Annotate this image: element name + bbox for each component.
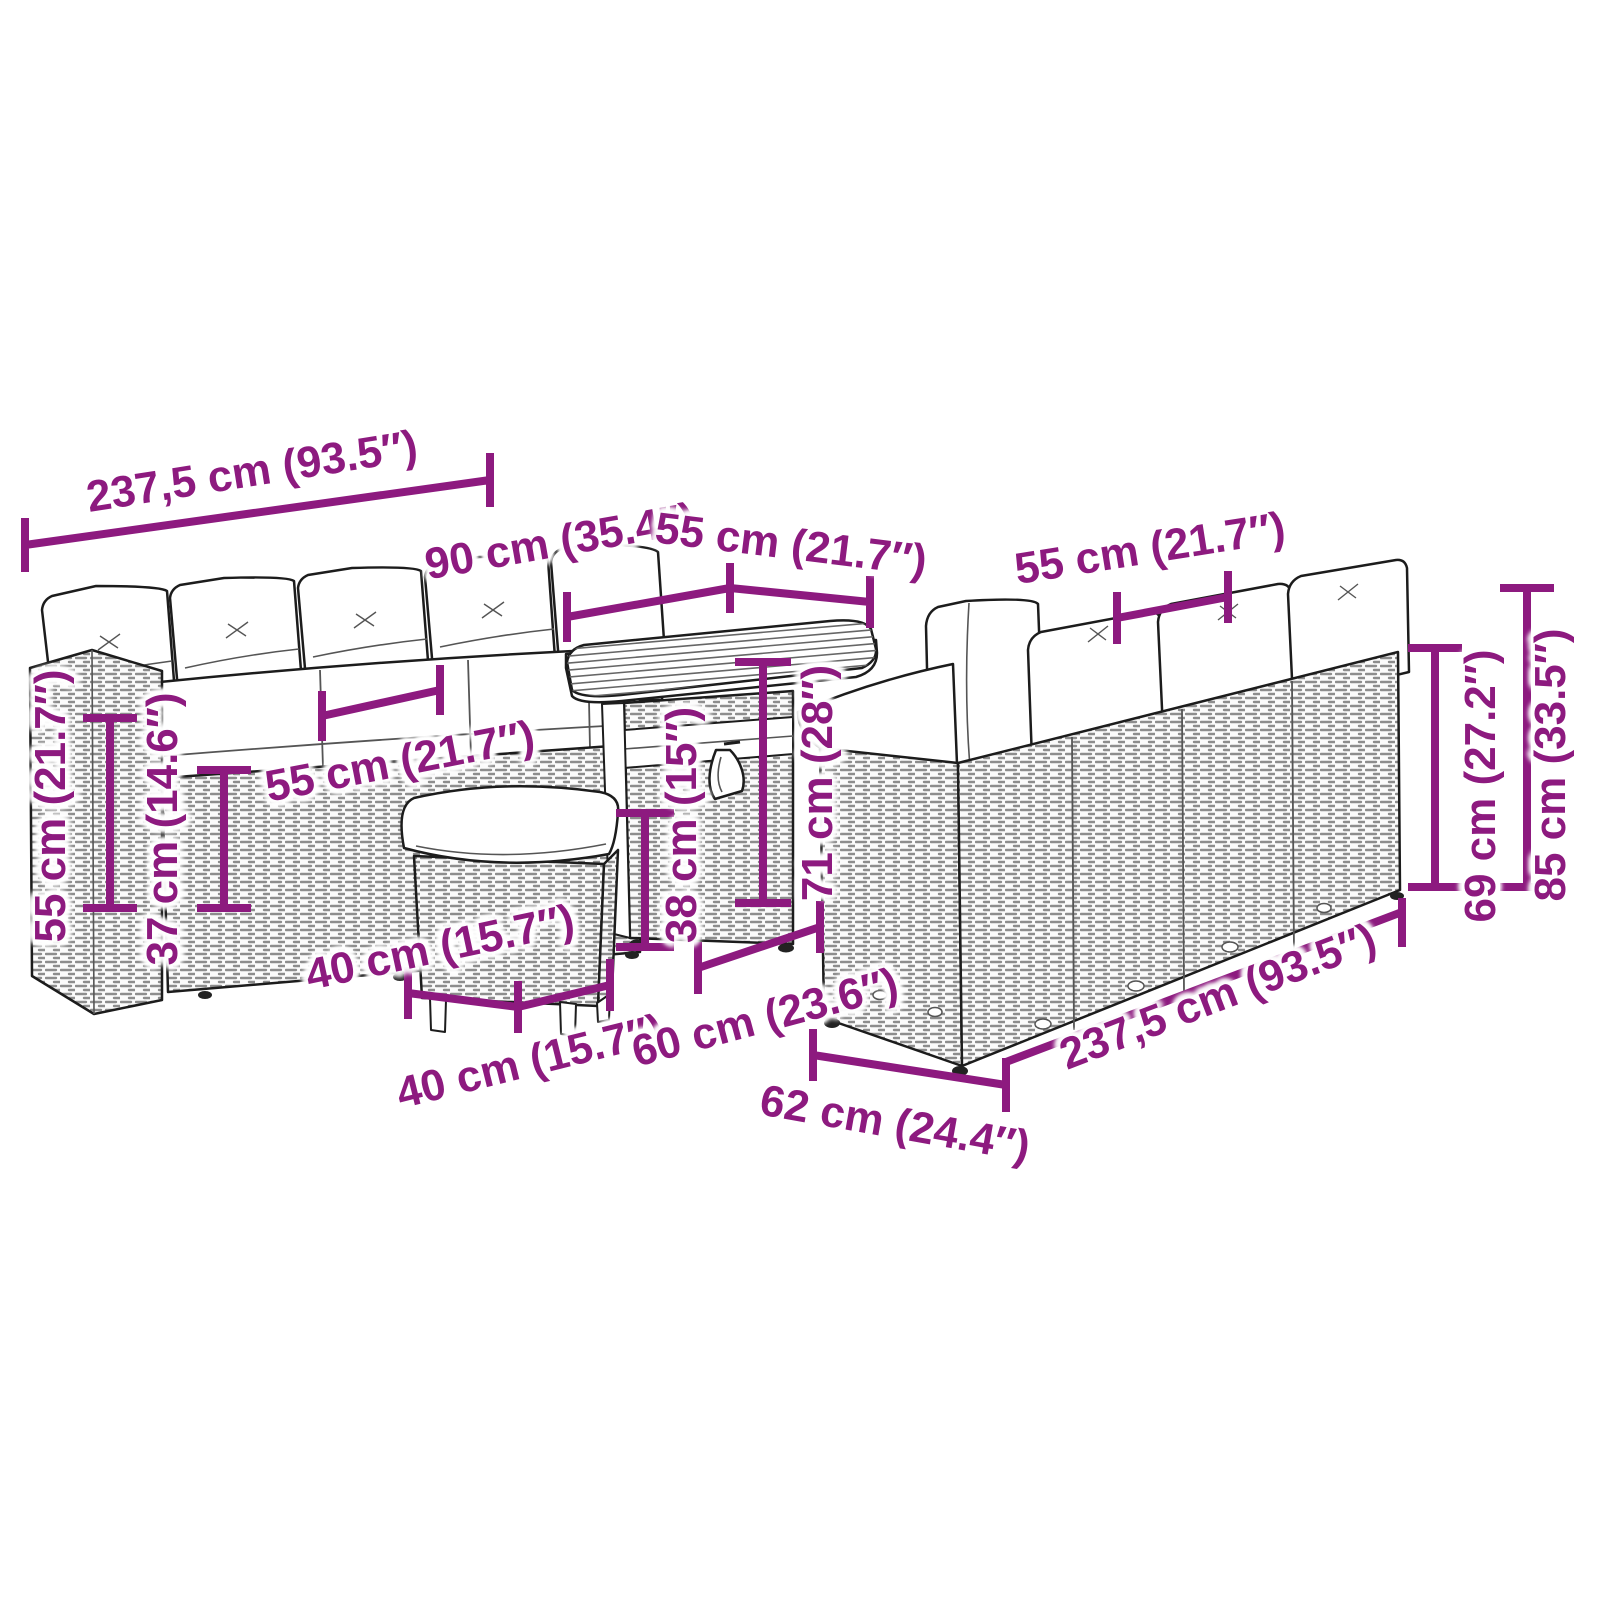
dim-label-total-height: 85 cm (33.5″) [1526,628,1576,901]
dim-label-armrest-height: 55 cm (21.7″) [26,669,76,942]
dim-label-stool-height: 38 cm (15″) [657,707,707,943]
dim-label-back-height: 69 cm (27.2″) [1456,649,1506,922]
dimension-diagram: 237,5 cm (93.5″) 90 cm (35.4″) 55 cm (21… [0,0,1600,1600]
dim-label-seat-height: 37 cm (14.6″) [138,692,188,965]
dim-line-back-height [1408,648,1462,887]
dim-label-table-height: 71 cm (28″) [793,665,843,901]
